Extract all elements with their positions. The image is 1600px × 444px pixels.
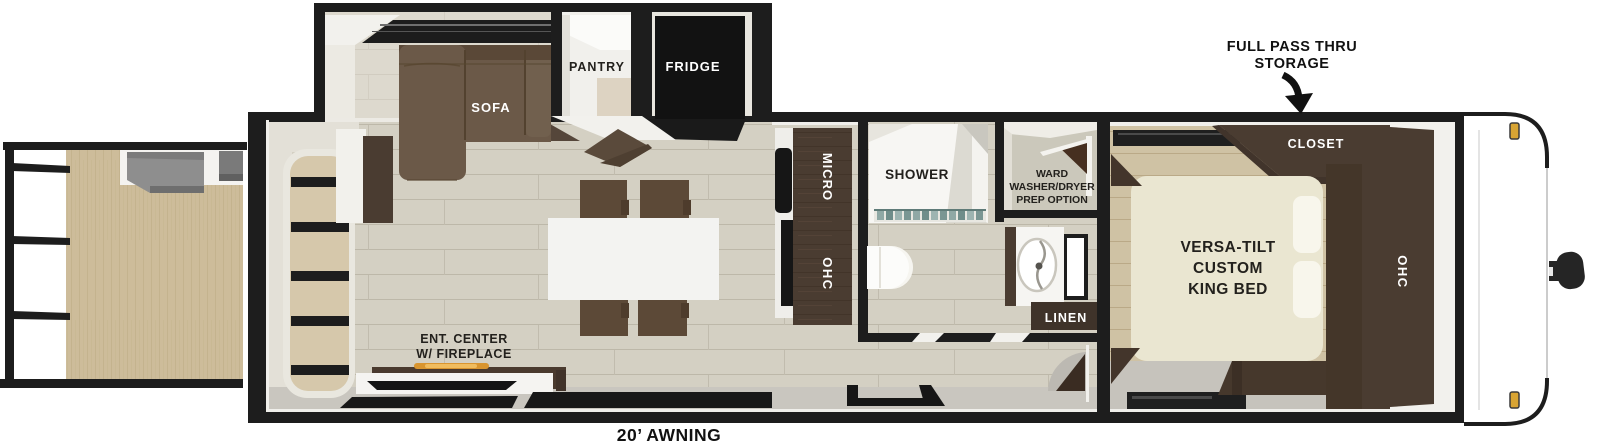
svg-text:KING BED: KING BED [1188, 281, 1268, 298]
svg-text:VERSA-TILT: VERSA-TILT [1180, 239, 1275, 256]
svg-text:PANTRY: PANTRY [569, 60, 625, 74]
svg-text:LINEN: LINEN [1045, 311, 1088, 325]
svg-text:CUSTOM: CUSTOM [1193, 260, 1263, 277]
svg-text:WASHER/DRYER: WASHER/DRYER [1009, 181, 1095, 193]
svg-text:PREP OPTION: PREP OPTION [1016, 194, 1088, 206]
svg-text:SHOWER: SHOWER [885, 167, 949, 182]
svg-text:STORAGE: STORAGE [1255, 56, 1330, 72]
svg-text:FULL PASS THRU: FULL PASS THRU [1227, 39, 1358, 55]
svg-text:CLOSET: CLOSET [1288, 137, 1345, 151]
svg-text:OHC: OHC [1395, 255, 1410, 288]
svg-text:MICRO: MICRO [820, 153, 835, 201]
svg-text:ENT. CENTER: ENT. CENTER [420, 332, 507, 346]
svg-text:WARD: WARD [1036, 168, 1068, 180]
svg-text:OHC: OHC [820, 257, 835, 290]
svg-text:W/ FIREPLACE: W/ FIREPLACE [416, 347, 512, 361]
svg-text:20’ AWNING: 20’ AWNING [617, 425, 722, 444]
svg-text:SOFA: SOFA [471, 100, 510, 115]
svg-text:FRIDGE: FRIDGE [665, 59, 720, 74]
